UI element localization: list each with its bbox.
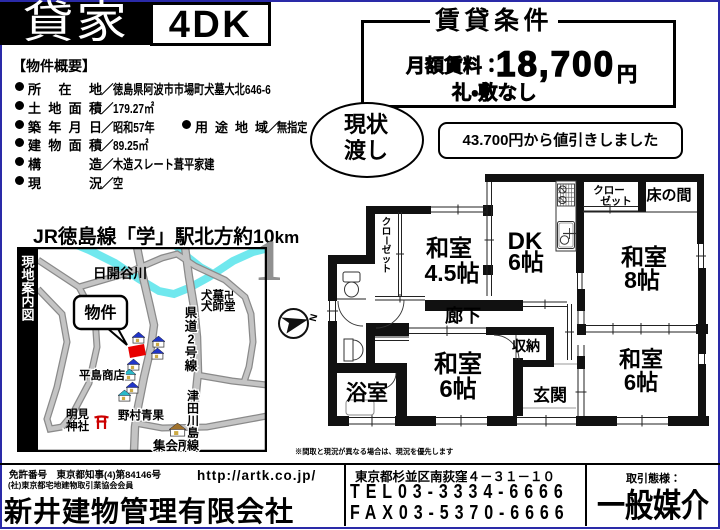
svg-text:和室: 和室 (619, 347, 663, 372)
svg-text:6帖: 6帖 (439, 376, 476, 403)
svg-text:廊下: 廊下 (445, 305, 481, 326)
svg-text:犬墓卍: 犬墓卍 (201, 288, 234, 302)
svg-text:集会所: 集会所 (152, 438, 191, 452)
svg-text:6帖: 6帖 (624, 370, 658, 395)
svg-text:物件: 物件 (84, 303, 116, 322)
svg-text:ト: ト (382, 264, 392, 275)
svg-text:2: 2 (188, 333, 195, 347)
svg-text:収納: 収納 (512, 338, 540, 354)
svg-text:4.5帖: 4.5帖 (425, 260, 480, 286)
svg-text:床の間: 床の間 (646, 186, 691, 204)
svg-text:号: 号 (185, 345, 198, 360)
svg-text:犬師堂: 犬師堂 (201, 299, 236, 313)
svg-text:8帖: 8帖 (624, 267, 660, 293)
svg-text:日開谷川: 日開谷川 (93, 266, 147, 281)
svg-text:N: N (308, 313, 320, 323)
svg-text:線: 線 (184, 358, 198, 373)
svg-text:6帖: 6帖 (508, 249, 544, 275)
svg-text:明見: 明見 (66, 407, 89, 421)
svg-text:線: 線 (186, 438, 200, 452)
svg-text:和室: 和室 (434, 351, 482, 378)
svg-text:図: 図 (21, 307, 34, 322)
svg-text:ゼット: ゼット (600, 195, 632, 208)
svg-text:道: 道 (185, 318, 198, 333)
svg-text:野村青果: 野村青果 (118, 408, 164, 422)
svg-text:神社: 神社 (65, 419, 89, 433)
svg-text:平島商店: 平島商店 (79, 368, 125, 382)
svg-text:和室: 和室 (426, 235, 472, 261)
svg-text:浴室: 浴室 (346, 381, 388, 405)
svg-text:県: 県 (185, 306, 198, 320)
svg-text:ー: ー (380, 236, 391, 246)
svg-text:玄関: 玄関 (533, 385, 567, 405)
